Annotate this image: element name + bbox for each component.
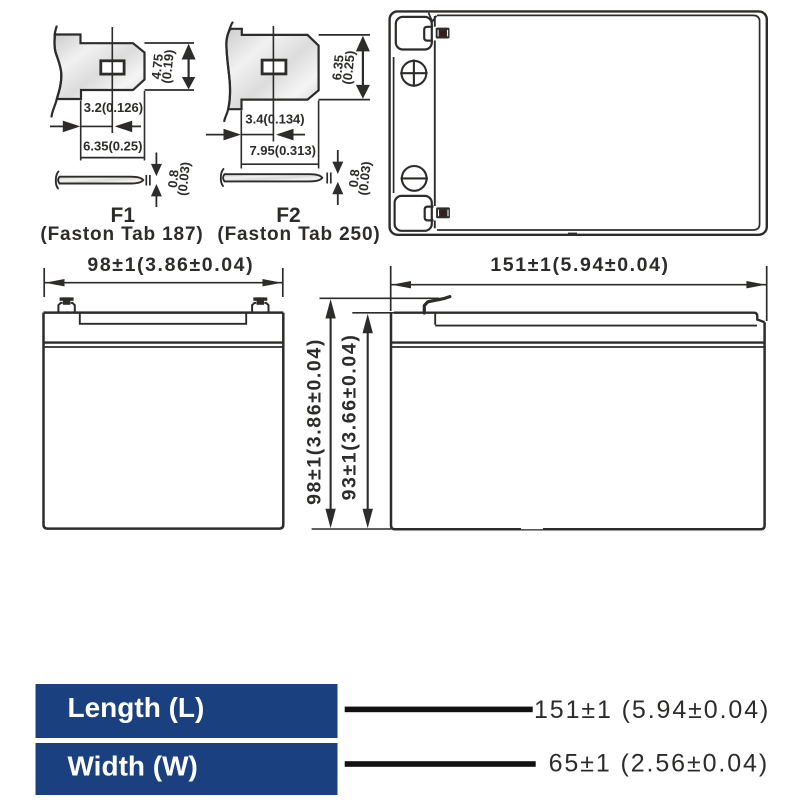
svg-text:65±1 (2.56±0.04): 65±1 (2.56±0.04): [549, 750, 769, 778]
svg-text:98±1(3.86±0.04): 98±1(3.86±0.04): [303, 338, 325, 505]
svg-text:3.2(0.126): 3.2(0.126): [84, 100, 143, 115]
svg-text:151±1 (5.94±0.04): 151±1 (5.94±0.04): [534, 696, 770, 724]
svg-text:98±1(3.86±0.04): 98±1(3.86±0.04): [87, 254, 254, 276]
svg-text:(Faston Tab 187): (Faston Tab 187): [40, 224, 203, 245]
svg-text:(Faston Tab 250): (Faston Tab 250): [217, 224, 380, 245]
svg-text:3.4(0.134): 3.4(0.134): [245, 112, 304, 127]
svg-text:Length (L): Length (L): [68, 692, 205, 723]
svg-text:151±1(5.94±0.04): 151±1(5.94±0.04): [490, 254, 669, 276]
svg-text:6.35(0.25): 6.35(0.25): [83, 139, 142, 154]
svg-text:(0.03): (0.03): [174, 161, 192, 196]
svg-text:7.95(0.313): 7.95(0.313): [249, 143, 316, 158]
svg-text:(0.25): (0.25): [339, 50, 357, 85]
svg-text:Width (W): Width (W): [68, 751, 198, 782]
svg-text:(0.19): (0.19): [158, 49, 176, 84]
svg-text:93±1(3.66±0.04): 93±1(3.66±0.04): [338, 334, 360, 501]
svg-text:(0.03): (0.03): [355, 161, 373, 196]
